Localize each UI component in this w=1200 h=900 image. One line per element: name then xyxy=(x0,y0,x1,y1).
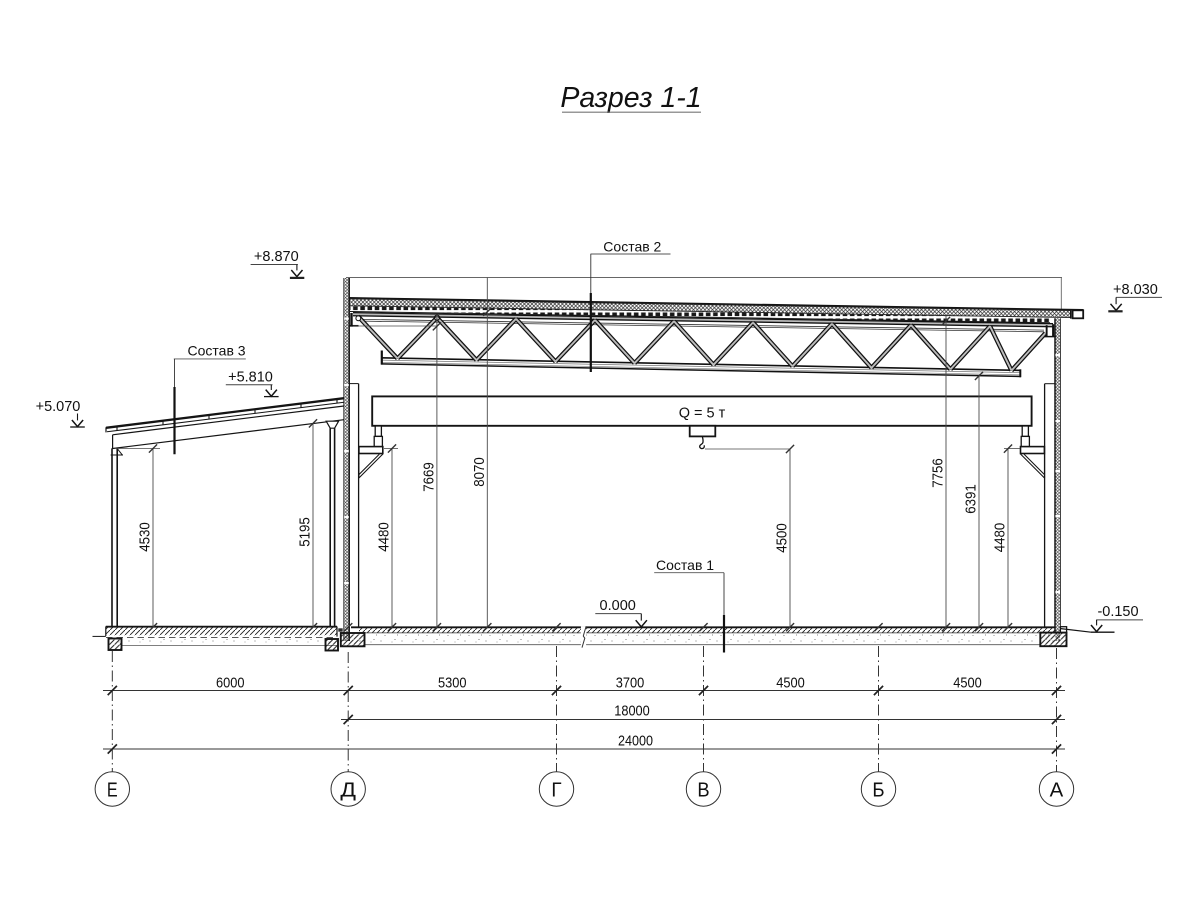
svg-text:В: В xyxy=(697,780,709,802)
svg-text:Б: Б xyxy=(872,780,884,802)
svg-text:4500: 4500 xyxy=(776,674,805,691)
svg-text:7669: 7669 xyxy=(420,462,437,492)
svg-text:Q = 5 т: Q = 5 т xyxy=(679,406,726,422)
svg-text:6391: 6391 xyxy=(963,484,980,514)
svg-text:4500: 4500 xyxy=(953,674,982,691)
svg-text:+5.810: +5.810 xyxy=(228,370,273,386)
svg-text:4530: 4530 xyxy=(137,522,154,552)
svg-text:0.000: 0.000 xyxy=(600,598,636,614)
svg-text:4500: 4500 xyxy=(774,523,791,553)
svg-text:4480: 4480 xyxy=(992,523,1009,553)
svg-text:Состав 2: Состав 2 xyxy=(603,239,661,255)
svg-text:4480: 4480 xyxy=(376,522,393,552)
svg-text:7756: 7756 xyxy=(930,458,947,488)
svg-text:24000: 24000 xyxy=(618,732,653,749)
svg-text:Е: Е xyxy=(107,780,118,802)
svg-text:Разрез 1-1: Разрез 1-1 xyxy=(560,82,701,114)
svg-text:3700: 3700 xyxy=(616,674,645,691)
svg-text:+8.030: +8.030 xyxy=(1113,282,1158,298)
svg-text:-0.150: -0.150 xyxy=(1097,604,1138,620)
svg-text:Состав 1: Состав 1 xyxy=(656,557,714,573)
svg-text:+8.870: +8.870 xyxy=(254,249,299,265)
svg-text:Г: Г xyxy=(551,780,561,802)
svg-text:5300: 5300 xyxy=(438,674,467,691)
svg-text:Состав 3: Состав 3 xyxy=(188,343,246,359)
svg-text:8070: 8070 xyxy=(471,457,488,487)
svg-text:+5.070: +5.070 xyxy=(36,399,81,415)
svg-text:5195: 5195 xyxy=(297,517,314,547)
svg-text:А: А xyxy=(1050,780,1064,802)
svg-text:Д: Д xyxy=(340,780,356,802)
svg-text:6000: 6000 xyxy=(216,674,245,691)
svg-text:18000: 18000 xyxy=(614,703,650,720)
